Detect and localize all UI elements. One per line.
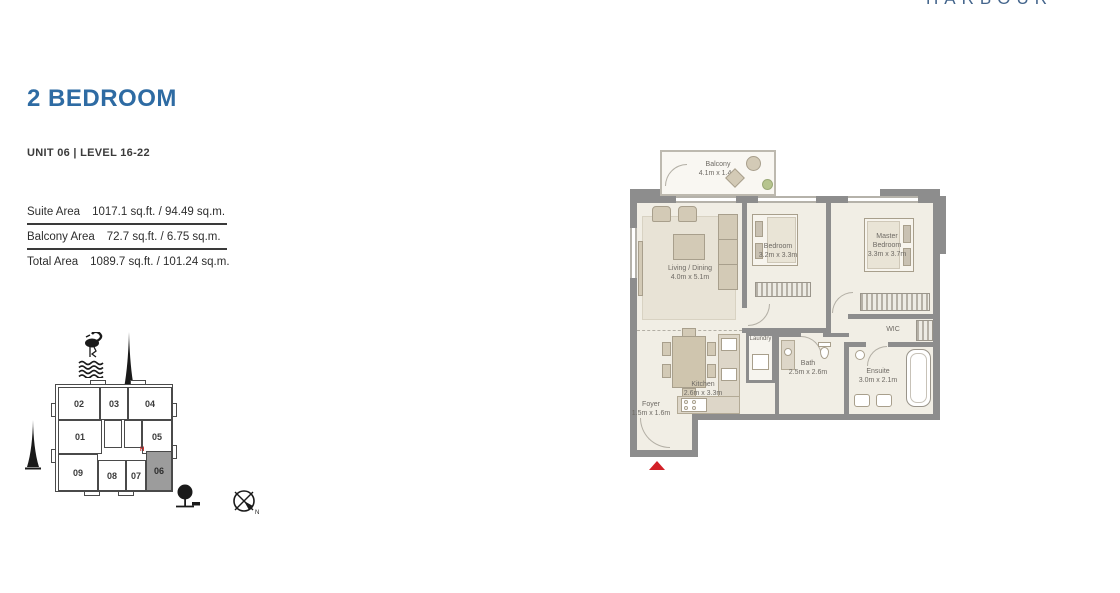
armchair: [678, 206, 697, 222]
flamingo-water-icon: [77, 332, 107, 378]
unit-number: 03: [109, 399, 119, 409]
unit-number: 06: [154, 466, 164, 476]
room-name: Kitchen: [678, 380, 728, 389]
balcony-stub: [172, 403, 177, 417]
burner: [692, 406, 696, 410]
area-row-total: Total Area 1089.7 sq.ft. / 101.24 sq.m.: [27, 250, 227, 273]
burner: [684, 400, 688, 404]
wall-bath-left: [775, 333, 779, 414]
exterior-wall-step: [692, 418, 698, 457]
keyplan-core: [124, 420, 142, 448]
brand-logo-clipped: HARBOUR: [926, 0, 1120, 11]
bedroom-label: Bedroom 3.2m x 3.3m: [743, 242, 813, 260]
wall-wic-ensuite: [888, 342, 940, 347]
room-name: Living / Dining: [655, 264, 725, 273]
wall-wic-ensuite: [849, 342, 866, 347]
unit-number: 07: [131, 471, 141, 481]
balcony-stub: [51, 403, 56, 417]
brochure-page: { "brand": { "wordmark": "HARBOUR" }, "h…: [0, 0, 1120, 593]
balcony-stub: [172, 445, 177, 459]
building-footprint: 02 03 04 01 05 09 08 07 06 H: [55, 384, 173, 492]
tree-icon: [175, 484, 203, 510]
unit-number: 08: [107, 471, 117, 481]
total-area-label: Total Area: [27, 256, 78, 268]
room-name: Master Bedroom: [864, 232, 910, 250]
keyplan-unit-06-highlighted: 06: [146, 451, 172, 491]
media-unit: [638, 241, 643, 296]
unit-number: 09: [73, 468, 83, 478]
room-dims: 4.0m x 5.1m: [655, 273, 725, 282]
room-name: Bath: [786, 359, 830, 368]
washer: [752, 354, 769, 370]
page-title: 2 BEDROOM: [27, 85, 177, 113]
burner: [684, 406, 688, 410]
coffee-table: [673, 234, 705, 260]
dining-chair: [707, 364, 716, 378]
keyplan-unit-08: 08: [98, 460, 126, 491]
wall-bath-ensuite: [844, 342, 849, 414]
unit-number: 05: [152, 432, 162, 442]
room-name: Bedroom: [743, 242, 813, 251]
window: [630, 228, 637, 278]
wall-bath-top: [823, 333, 849, 337]
ensuite-toilet: [855, 350, 865, 360]
suite-area-value: 1017.1 sq.ft. / 94.49 sq.m.: [92, 206, 225, 218]
ensuite-sink: [854, 394, 870, 407]
area-row-suite: Suite Area 1017.1 sq.ft. / 94.49 sq.m.: [27, 200, 227, 225]
balcony-table: [746, 156, 761, 171]
exterior-wall-bottom: [692, 414, 940, 420]
balcony-stub: [118, 491, 134, 496]
balcony-stub: [130, 380, 146, 385]
balcony-area-value: 72.7 sq.ft. / 6.75 sq.m.: [107, 231, 221, 243]
keyplan-unit-05: 05: [142, 420, 172, 454]
burj-tower-icon: [25, 420, 41, 470]
suite-area-label: Suite Area: [27, 206, 80, 218]
bathtub: [906, 349, 931, 407]
balcony-stub: [90, 380, 106, 385]
window: [848, 196, 918, 203]
living-dining-label: Living / Dining 4.0m x 5.1m: [655, 264, 725, 282]
brand-wordmark: HARBOUR: [926, 0, 1120, 9]
keyplan-unit-01: 01: [58, 420, 102, 454]
wall-stub: [630, 189, 660, 196]
area-row-balcony: Balcony Area 72.7 sq.ft. / 6.75 sq.m.: [27, 225, 227, 250]
master-bedroom-label: Master Bedroom 3.3m x 3.7m: [864, 232, 910, 259]
burner: [692, 400, 696, 404]
room-dims: 3.0m x 2.1m: [856, 376, 900, 385]
room-dims: 2.6m x 3.3m: [678, 389, 728, 398]
keyplan-unit-02: 02: [58, 387, 100, 420]
keyplan-core: [104, 420, 122, 448]
keyplan-unit-09: 09: [58, 454, 98, 491]
room-dims: 2.5m x 2.6m: [786, 368, 830, 377]
wall-bath-top: [775, 333, 801, 337]
exterior-wall-right: [933, 196, 940, 420]
dining-chair: [662, 342, 671, 356]
keyplan-unit-07: 07: [126, 460, 146, 491]
ensuite-sink: [876, 394, 892, 407]
wall-stub: [880, 189, 940, 196]
compass-north-label: N: [255, 510, 259, 516]
bathtub-basin: [910, 353, 927, 403]
keyplan-unit-04: 04: [128, 387, 172, 420]
laundry-label: Laundry: [745, 336, 776, 344]
keyplan-h-marker: H: [140, 447, 144, 453]
wic-label: WIC: [873, 325, 913, 334]
room-name: WIC: [873, 325, 913, 334]
building-key-plan: 02 03 04 01 05 09 08 07 06 H N: [25, 330, 270, 525]
entry-arrow-marker: [649, 461, 665, 470]
balcony-stub: [51, 449, 56, 463]
pillow: [755, 221, 763, 237]
unit-number: 02: [74, 399, 84, 409]
window: [758, 196, 816, 203]
window: [676, 196, 736, 203]
floor-plan: Balcony 4.1m x 1.4m: [618, 146, 958, 486]
ensuite-label: Ensuite 3.0m x 2.1m: [856, 367, 900, 385]
balcony-room: Balcony 4.1m x 1.4m: [660, 150, 776, 196]
bath-label: Bath 2.5m x 2.6m: [786, 359, 830, 377]
balcony-plant: [762, 179, 773, 190]
master-wardrobe: [860, 293, 930, 311]
unit-number: 04: [145, 399, 155, 409]
room-dims: 3.2m x 3.3m: [743, 251, 813, 260]
area-table: Suite Area 1017.1 sq.ft. / 94.49 sq.m. B…: [27, 200, 227, 273]
room-name: Ensuite: [856, 367, 900, 376]
room-dims: 1.5m x 1.6m: [628, 409, 674, 418]
foyer-label: Foyer 1.5m x 1.6m: [628, 400, 674, 418]
balcony-area-label: Balcony Area: [27, 231, 95, 243]
exterior-wall-foyer-bottom: [630, 450, 698, 457]
keyplan-unit-03: 03: [100, 387, 128, 420]
unit-number: 01: [75, 432, 85, 442]
bath-sink: [784, 348, 792, 356]
total-area-value: 1089.7 sq.ft. / 101.24 sq.m.: [90, 256, 229, 268]
dining-chair: [662, 364, 671, 378]
wic-closet: [916, 320, 933, 341]
room-name: Foyer: [628, 400, 674, 409]
wall-master-bottom: [848, 314, 940, 319]
room-name: Laundry: [745, 336, 776, 344]
wall-bedroom-master: [826, 196, 831, 328]
dining-chair: [707, 342, 716, 356]
balcony-stub: [84, 491, 100, 496]
armchair: [652, 206, 671, 222]
room-dims: 3.3m x 3.7m: [864, 250, 910, 259]
bedroom-closet: [755, 282, 811, 297]
fridge: [721, 338, 737, 351]
unit-level-line: UNIT 06 | LEVEL 16-22: [27, 147, 150, 159]
compass-icon: N: [231, 488, 263, 518]
wall-stub: [940, 196, 946, 254]
kitchen-label: Kitchen 2.6m x 3.3m: [678, 380, 728, 398]
